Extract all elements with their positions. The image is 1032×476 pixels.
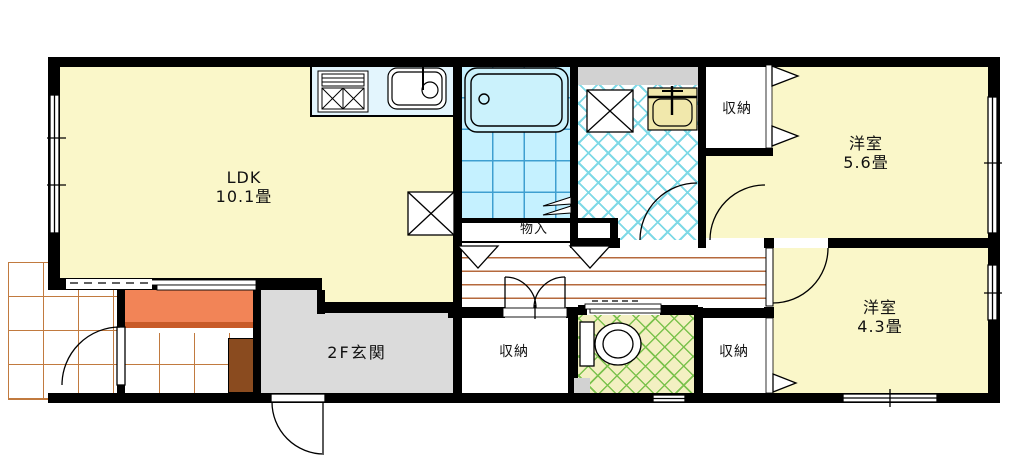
- closet-southeast-bifold-door: [766, 318, 796, 393]
- label-closet-north: 収納: [722, 101, 752, 118]
- toilet-sliding-door: [585, 301, 661, 313]
- window-toilet-vent: [653, 395, 685, 402]
- label-western-north: 洋室 5.6畳: [843, 134, 888, 172]
- room-name: LDK: [216, 168, 273, 187]
- storage-nook-fold-doors: [458, 246, 610, 268]
- label-ldk: LDK 10.1畳: [216, 168, 273, 206]
- entrance-door-swing: [271, 394, 325, 454]
- window-right-south: [984, 265, 1002, 320]
- label-storage-nook: 物入: [520, 222, 548, 238]
- refrigerator-space-x-icon: [408, 192, 454, 235]
- western-south-door-swing: [766, 248, 828, 306]
- closet-center-double-doors: [503, 277, 567, 319]
- window-bottom-south: [843, 389, 937, 407]
- sink-icon: [388, 59, 446, 109]
- toilet-icon: [580, 322, 641, 366]
- linework-overlay: [0, 0, 1032, 476]
- room-size: 4.3畳: [857, 317, 902, 336]
- washbasin-icon: [648, 86, 697, 130]
- terrace-door-swing: [62, 327, 125, 385]
- washroom-door-swing: [640, 183, 697, 240]
- window-left: [47, 95, 66, 233]
- floorplan-canvas: LDK 10.1畳 洋室 5.6畳 洋室 4.3畳 収納 収納 収納 物入 2F…: [0, 0, 1032, 476]
- room-size: 10.1畳: [216, 187, 273, 206]
- label-closet-southeast: 収納: [719, 344, 749, 361]
- bathtub-icon: [465, 68, 568, 132]
- ldk-open-boundary: [66, 279, 152, 289]
- washing-machine-space-x-icon: [587, 90, 633, 132]
- closet-north-bifold-door: [766, 65, 798, 148]
- ldk-sliding-door: [150, 280, 256, 290]
- western-north-door-swing: [710, 185, 765, 240]
- label-closet-center: 収納: [499, 344, 529, 361]
- stove-icon: [318, 71, 368, 112]
- bathroom-fold-door: [543, 197, 571, 215]
- room-size: 5.6畳: [843, 153, 888, 172]
- room-name: 洋室: [857, 298, 902, 317]
- room-name: 洋室: [843, 134, 888, 153]
- label-western-south: 洋室 4.3畳: [857, 298, 902, 336]
- label-entrance-hall: 2F玄関: [327, 343, 386, 362]
- window-right-north: [984, 97, 1002, 233]
